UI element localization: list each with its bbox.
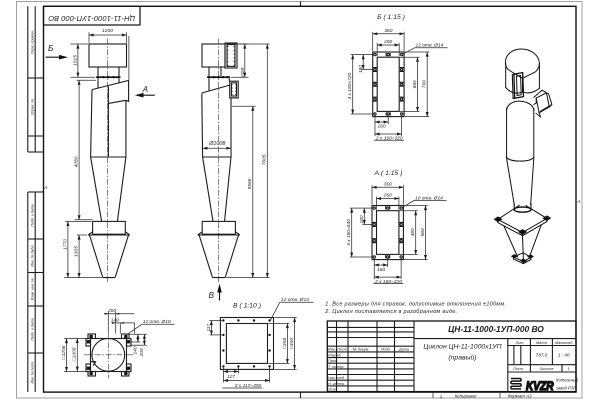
svg-text:5566: 5566 [247, 178, 253, 189]
svg-text:12 отв. Ø14: 12 отв. Ø14 [416, 43, 444, 49]
svg-text:117: 117 [206, 324, 212, 332]
svg-text:□308: □308 [282, 338, 288, 349]
svg-text:200: 200 [139, 348, 145, 357]
svg-text:1200: 1200 [102, 28, 113, 34]
svg-text:В ( 1:10 ): В ( 1:10 ) [233, 303, 261, 310]
svg-text:360: 360 [384, 28, 392, 34]
svg-text:160: 160 [377, 267, 385, 273]
svg-text:Подп.: Подп. [381, 347, 391, 351]
svg-text:360: 360 [384, 182, 392, 188]
svg-text:1: 1 [567, 367, 569, 371]
svg-text:660: 660 [412, 80, 418, 88]
svg-text:завод РЭП: завод РЭП [555, 385, 576, 390]
svg-text:А: А [44, 185, 48, 190]
svg-text:160: 160 [377, 124, 385, 130]
svg-text:Взам. инв. №: Взам. инв. № [30, 278, 34, 300]
svg-text:Изм.: Изм. [328, 347, 336, 351]
svg-text:12 отв. Ø14: 12 отв. Ø14 [281, 297, 309, 303]
svg-text:Ø1008: Ø1008 [208, 141, 225, 147]
svg-text:180: 180 [358, 65, 364, 73]
svg-text:1015: 1015 [72, 55, 78, 66]
svg-text:Перв. примен.: Перв. примен. [30, 30, 34, 54]
svg-text:260: 260 [383, 39, 392, 45]
svg-text:□1206: □1206 [61, 345, 67, 359]
svg-text:1305: 1305 [74, 246, 80, 257]
svg-text:Нач. отд.: Нач. отд. [328, 376, 345, 380]
svg-text:4280: 4280 [74, 156, 80, 167]
svg-text:Лист: Лист [512, 367, 523, 371]
svg-text:Подп. и дата: Подп. и дата [30, 204, 34, 227]
svg-text:1 : 40: 1 : 40 [558, 352, 570, 357]
svg-text:Котельный: Котельный [556, 378, 579, 383]
svg-text:10 отв. Ø14: 10 отв. Ø14 [415, 195, 443, 201]
svg-text:Подп. и дата: Подп. и дата [30, 318, 34, 341]
svg-text:Циклон ЦН-11-1000х1УП: Циклон ЦН-11-1000х1УП [423, 343, 501, 350]
svg-text:4 x 180=720: 4 x 180=720 [347, 72, 353, 99]
svg-text:(правый): (правый) [448, 354, 476, 362]
svg-text:Масштаб: Масштаб [555, 341, 573, 345]
svg-text:Разраб.: Разраб. [328, 353, 342, 357]
svg-text:А ( 1:15 ): А ( 1:15 ) [374, 170, 403, 177]
svg-text:2. Циклон поставляется в разоб: 2. Циклон поставляется в разобранном вид… [324, 309, 457, 315]
svg-text:Формат А3: Формат А3 [507, 393, 532, 398]
svg-text:787,0: 787,0 [536, 352, 548, 357]
svg-text:1. Все размеры для справок, до: 1. Все размеры для справок, допустимые о… [325, 302, 506, 308]
svg-text:Утв.: Утв. [328, 387, 337, 391]
svg-text:В: В [209, 291, 215, 300]
svg-text:480: 480 [410, 228, 416, 236]
svg-text:А: А [577, 199, 581, 204]
svg-text:760: 760 [422, 80, 428, 88]
svg-text:1770: 1770 [62, 239, 68, 250]
svg-text:1059: 1059 [240, 67, 246, 78]
svg-text:Т. контр.: Т. контр. [328, 365, 344, 369]
svg-text:Листов: Листов [539, 367, 554, 371]
svg-text:□400: □400 [289, 338, 295, 349]
svg-text:140: 140 [133, 346, 139, 354]
svg-text:3 x 180=540: 3 x 180=540 [346, 219, 352, 246]
svg-text:117: 117 [227, 374, 235, 380]
svg-text:□1008: □1008 [72, 347, 78, 361]
svg-text:№ докум.: № докум. [353, 347, 370, 351]
svg-text:Б ( 1:15 ): Б ( 1:15 ) [377, 14, 405, 21]
svg-text:Б: Б [48, 44, 54, 53]
svg-text:Пров.: Пров. [328, 359, 338, 363]
svg-text:140: 140 [111, 317, 119, 323]
svg-text:7605: 7605 [262, 154, 268, 165]
svg-text:KVZR: KVZR [526, 379, 554, 393]
svg-text:ЦН-11-1000-1УП-000 ВО: ЦН-11-1000-1УП-000 ВО [448, 324, 544, 334]
svg-text:Дата: Дата [398, 347, 409, 351]
svg-text:Справ. №: Справ. № [30, 99, 34, 115]
svg-text:260: 260 [383, 193, 392, 199]
svg-text:200: 200 [107, 308, 116, 314]
svg-text:Н. контр.: Н. контр. [328, 382, 345, 386]
svg-text:Копировал: Копировал [455, 393, 477, 398]
svg-text:А: А [142, 85, 149, 94]
svg-text:Лит.: Лит. [515, 341, 525, 345]
svg-text:2 x 160=320: 2 x 160=320 [375, 136, 403, 142]
svg-text:180: 180 [359, 215, 365, 223]
svg-text:Масса: Масса [536, 341, 547, 345]
svg-text:12 отв. Ø18: 12 отв. Ø18 [143, 319, 171, 325]
svg-text:Инв. № подл.: Инв. № подл. [30, 361, 34, 383]
svg-text:2 x 160=320: 2 x 160=320 [374, 279, 402, 285]
svg-text:580: 580 [420, 228, 426, 236]
svg-text:Лист: Лист [336, 347, 347, 351]
svg-text:Инв. № дубл.: Инв. № дубл. [30, 245, 34, 267]
svg-text:ЦН-11-1000-1УП-000 ВО: ЦН-11-1000-1УП-000 ВО [48, 14, 135, 23]
